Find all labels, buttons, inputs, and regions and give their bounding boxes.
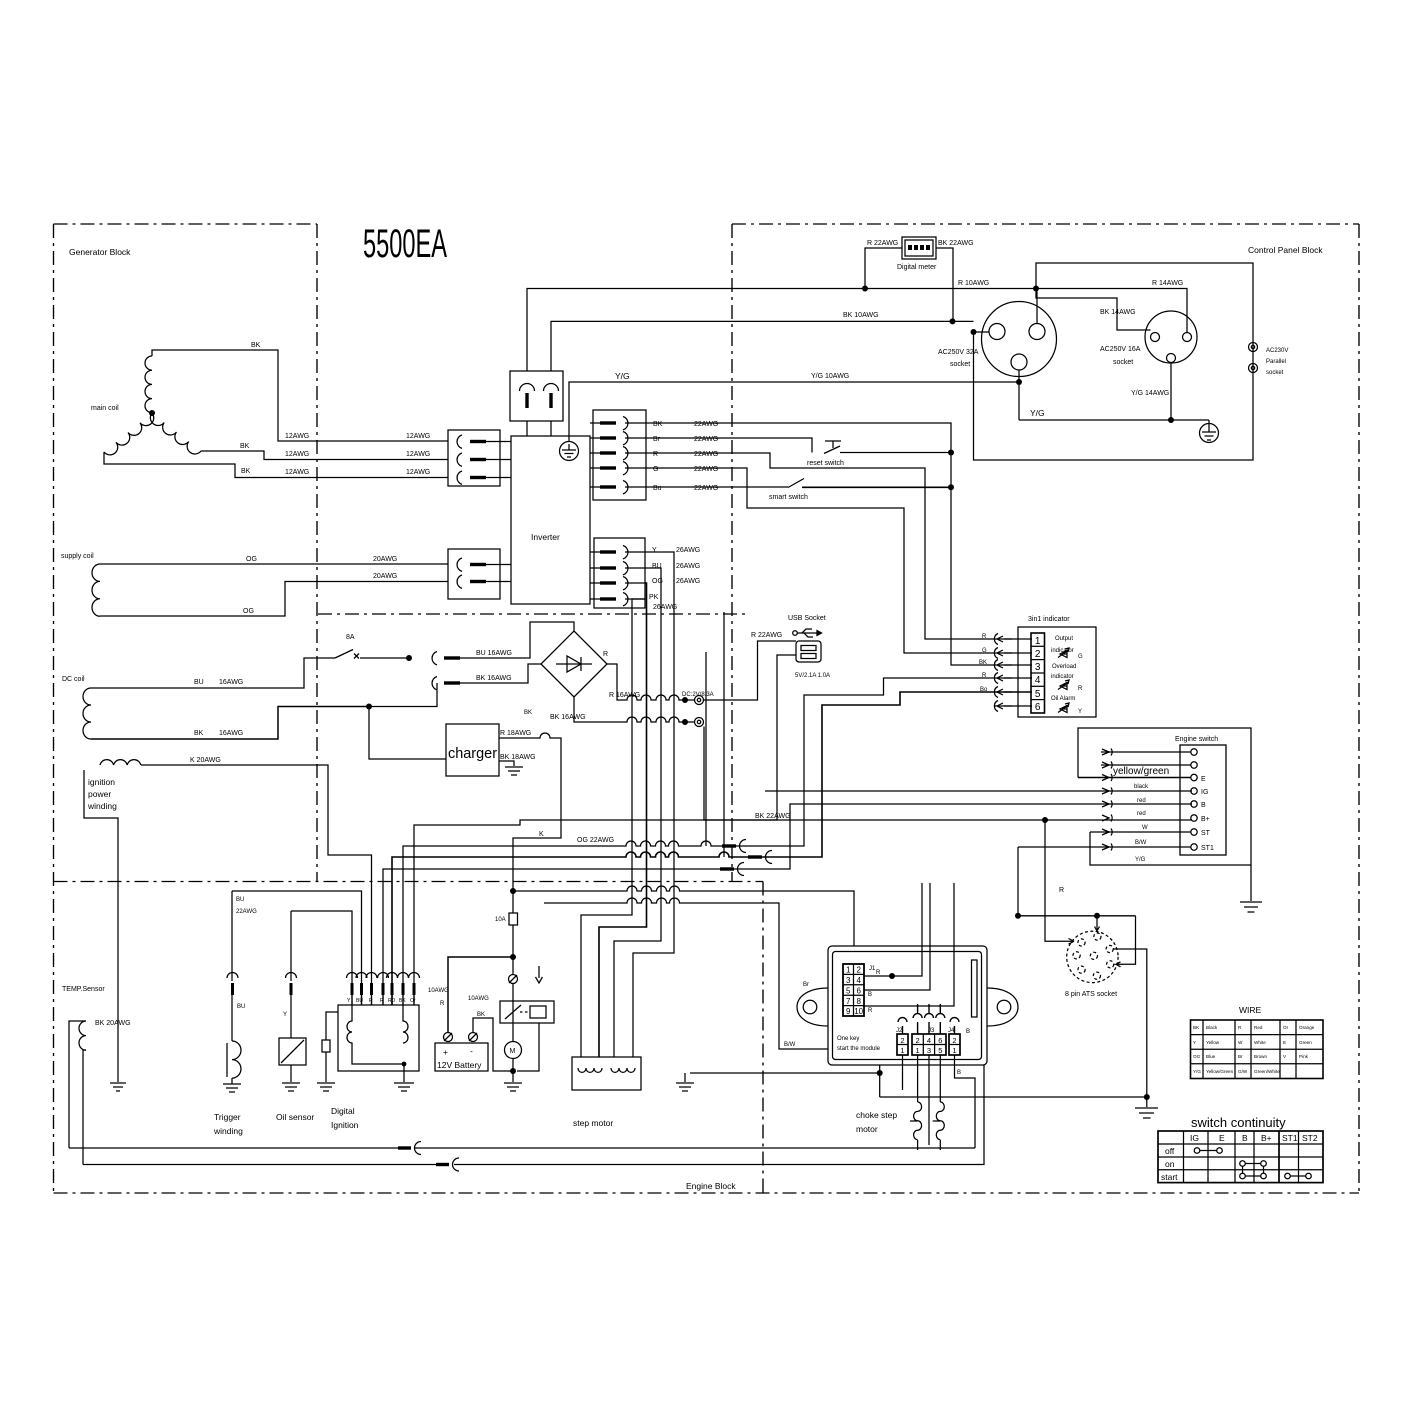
svg-text:Y: Y (283, 1012, 287, 1018)
svg-text:-: - (470, 1046, 473, 1056)
svg-text:R: R (653, 451, 658, 458)
svg-text:BK 14AWG: BK 14AWG (1100, 309, 1136, 316)
svg-text:Y: Y (1078, 709, 1082, 715)
svg-text:Bo: Bo (980, 687, 988, 693)
svg-text:start: start (1161, 1172, 1178, 1182)
svg-text:2: 2 (900, 1036, 904, 1045)
svg-text:ST1: ST1 (1282, 1133, 1298, 1143)
svg-text:Oil sensor: Oil sensor (276, 1112, 314, 1122)
svg-text:ignition: ignition (88, 777, 115, 787)
svg-text:DC:2V/8.3A: DC:2V/8.3A (682, 692, 714, 698)
svg-text:Orange: Orange (1299, 1025, 1315, 1030)
svg-text:Black: Black (1206, 1025, 1218, 1030)
svg-text:1: 1 (1035, 636, 1041, 647)
svg-text:1: 1 (916, 1046, 920, 1055)
svg-text:BU: BU (356, 998, 363, 1004)
svg-text:Pink: Pink (1299, 1054, 1309, 1059)
svg-text:winding: winding (213, 1126, 243, 1136)
svg-text:Y: Y (652, 547, 657, 554)
svg-text:K: K (539, 831, 544, 838)
svg-text:12AWG: 12AWG (406, 469, 430, 476)
svg-text:Y/G: Y/G (1030, 408, 1045, 418)
svg-text:B/W: B/W (784, 1042, 796, 1048)
svg-text:R 18AWG: R 18AWG (500, 730, 531, 737)
svg-text:2: 2 (916, 1036, 920, 1045)
svg-text:WIRE: WIRE (1239, 1005, 1262, 1015)
svg-text:7: 7 (846, 997, 851, 1006)
svg-text:Trigger: Trigger (214, 1112, 241, 1122)
svg-text:switch continuity: switch continuity (1191, 1115, 1286, 1130)
svg-text:Y/G: Y/G (615, 371, 630, 381)
svg-text:22AWG: 22AWG (694, 436, 718, 443)
svg-text:OG: OG (243, 608, 254, 615)
svg-text:ST: ST (1201, 830, 1211, 837)
svg-text:12AWG: 12AWG (406, 433, 430, 440)
svg-text:winding: winding (87, 801, 117, 811)
svg-text:B: B (957, 1070, 961, 1076)
svg-text:main coil: main coil (91, 405, 119, 412)
svg-text:Or: Or (410, 998, 416, 1004)
svg-text:B: B (1242, 1133, 1248, 1143)
svg-text:3: 3 (927, 1046, 931, 1055)
svg-text:9: 9 (846, 1007, 851, 1016)
svg-text:DC coil: DC coil (62, 676, 85, 683)
svg-text:B: B (966, 1029, 970, 1035)
svg-text:AC250V 16A: AC250V 16A (1100, 346, 1141, 353)
svg-text:power: power (88, 789, 111, 799)
svg-text:Br: Br (803, 982, 809, 988)
svg-text:IG: IG (1190, 1133, 1199, 1143)
svg-text:BK: BK (241, 468, 251, 475)
svg-text:Bu: Bu (653, 485, 662, 492)
svg-text:B/W: B/W (1135, 840, 1147, 846)
svg-text:BK 16AWG: BK 16AWG (476, 675, 512, 682)
svg-text:Oil Alarm: Oil Alarm (1051, 696, 1075, 702)
svg-text:4: 4 (1035, 675, 1041, 686)
svg-text:5: 5 (938, 1046, 942, 1055)
svg-text:OG: OG (246, 556, 257, 563)
svg-text:Red: Red (1254, 1025, 1263, 1030)
svg-text:6: 6 (856, 986, 861, 995)
svg-text:1: 1 (900, 1046, 904, 1055)
svg-text:socket: socket (1266, 370, 1284, 376)
svg-text:12AWG: 12AWG (285, 451, 309, 458)
svg-text:E: E (1219, 1133, 1225, 1143)
svg-text:red: red (1137, 798, 1146, 804)
svg-text:BK: BK (240, 443, 250, 450)
svg-text:BK: BK (653, 421, 663, 428)
svg-text:Output: Output (1055, 636, 1073, 642)
svg-text:20AWG: 20AWG (373, 573, 397, 580)
svg-text:BK 10AWG: BK 10AWG (843, 312, 879, 319)
svg-text:BK: BK (251, 342, 261, 349)
svg-text:reset switch: reset switch (807, 460, 844, 467)
svg-text:Br: Br (653, 436, 661, 443)
svg-text:White: White (1254, 1040, 1266, 1045)
svg-text:B: B (868, 992, 872, 998)
svg-text:start the module: start the module (837, 1046, 881, 1052)
svg-text:PK: PK (649, 594, 659, 601)
svg-text:8: 8 (856, 997, 861, 1006)
svg-text:R: R (440, 1001, 445, 1007)
svg-text:M: M (510, 1048, 516, 1055)
svg-text:22AWG: 22AWG (694, 451, 718, 458)
svg-text:Yellow: Yellow (1206, 1040, 1220, 1045)
svg-text:Blue: Blue (1206, 1054, 1216, 1059)
svg-text:BK: BK (524, 710, 532, 716)
svg-text:TEMP.Sensor: TEMP.Sensor (62, 986, 105, 993)
svg-text:Engine switch: Engine switch (1175, 736, 1218, 743)
svg-text:12V Battery: 12V Battery (437, 1060, 482, 1070)
svg-text:indicator: indicator (1051, 674, 1074, 680)
svg-text:8 pin ATS socket: 8 pin ATS socket (1065, 991, 1117, 998)
svg-text:BK: BK (477, 1012, 485, 1018)
svg-text:red: red (1137, 811, 1146, 817)
svg-text:Y/G 14AWG: Y/G 14AWG (1131, 390, 1169, 397)
svg-text:G: G (1078, 654, 1083, 660)
svg-text:3: 3 (1035, 662, 1041, 673)
svg-text:BK: BK (194, 730, 204, 737)
svg-text:+: + (443, 1047, 448, 1057)
svg-text:G/W: G/W (1238, 1069, 1248, 1074)
svg-text:2: 2 (856, 966, 861, 975)
svg-text:R 22AWG: R 22AWG (751, 632, 782, 639)
svg-text:B+: B+ (1201, 816, 1210, 823)
svg-text:4: 4 (856, 976, 861, 985)
svg-text:Ignition: Ignition (331, 1120, 359, 1130)
svg-text:16AWG: 16AWG (219, 730, 243, 737)
svg-text:Green/White: Green/White (1254, 1069, 1280, 1074)
svg-text:B: B (1201, 802, 1206, 809)
svg-text:5: 5 (1035, 689, 1041, 700)
svg-text:AC230V: AC230V (1266, 348, 1288, 354)
svg-text:on: on (1165, 1159, 1175, 1169)
svg-text:BK: BK (979, 660, 987, 666)
svg-text:Parallel: Parallel (1266, 359, 1286, 365)
svg-text:black: black (1134, 784, 1149, 790)
svg-text:J1: J1 (869, 966, 876, 972)
svg-text:E: E (1201, 776, 1206, 783)
svg-text:12AWG: 12AWG (285, 433, 309, 440)
svg-text:motor: motor (856, 1124, 878, 1134)
svg-text:22AWG: 22AWG (694, 421, 718, 428)
svg-text:ST1: ST1 (1201, 845, 1214, 852)
svg-text:socket: socket (1113, 359, 1133, 366)
svg-text:Control Panel Block: Control Panel Block (1248, 245, 1323, 255)
svg-text:choke step: choke step (856, 1110, 897, 1120)
svg-text:socket: socket (950, 361, 970, 368)
svg-text:22AWG: 22AWG (694, 466, 718, 473)
svg-text:G: G (653, 466, 658, 473)
svg-text:4: 4 (927, 1036, 931, 1045)
svg-text:26AWG: 26AWG (676, 578, 700, 585)
svg-text:2: 2 (1035, 649, 1041, 660)
svg-text:Green: Green (1299, 1040, 1312, 1045)
svg-text:R: R (1078, 686, 1083, 692)
svg-text:R: R (982, 673, 987, 679)
svg-text:R 10AWG: R 10AWG (958, 280, 989, 287)
svg-text:smart switch: smart switch (769, 494, 808, 501)
svg-text:Digital: Digital (331, 1106, 355, 1116)
svg-text:supply coil: supply coil (61, 553, 94, 560)
svg-text:5V/2.1A 1.0A: 5V/2.1A 1.0A (795, 673, 830, 679)
svg-text:Inverter: Inverter (531, 532, 560, 542)
svg-text:6: 6 (1035, 702, 1041, 713)
svg-text:W: W (1238, 1040, 1243, 1045)
svg-text:charger: charger (448, 745, 497, 762)
svg-text:BU: BU (652, 563, 662, 570)
svg-text:OG: OG (1193, 1054, 1201, 1059)
svg-text:10A: 10A (495, 917, 506, 923)
svg-text:26AWG: 26AWG (676, 563, 700, 570)
svg-text:R: R (1059, 887, 1064, 894)
svg-text:R: R (982, 634, 987, 640)
svg-text:yellow/green: yellow/green (1113, 766, 1169, 777)
svg-text:OG 22AWG: OG 22AWG (577, 837, 614, 844)
svg-text:16AWG: 16AWG (219, 679, 243, 686)
svg-text:IG: IG (1201, 789, 1208, 796)
svg-text:Digital meter: Digital meter (897, 264, 937, 271)
svg-text:step motor: step motor (573, 1118, 613, 1128)
svg-text:AC250V 32A: AC250V 32A (938, 349, 979, 356)
svg-text:12AWG: 12AWG (285, 469, 309, 476)
svg-text:BK 22AWG: BK 22AWG (938, 240, 974, 247)
svg-text:BU: BU (237, 1004, 245, 1010)
svg-text:BK 16AWG: BK 16AWG (550, 714, 586, 721)
svg-text:Y/G: Y/G (1135, 857, 1146, 863)
svg-text:BK: BK (1193, 1025, 1200, 1030)
svg-text:10AWG: 10AWG (428, 988, 449, 994)
svg-text:off: off (1165, 1146, 1175, 1156)
svg-text:R: R (876, 970, 881, 976)
svg-text:3: 3 (846, 976, 851, 985)
svg-text:22AWG: 22AWG (236, 909, 257, 915)
svg-text:Y: Y (1193, 1040, 1196, 1045)
svg-text:10: 10 (854, 1007, 863, 1016)
svg-text:5500EA: 5500EA (363, 222, 447, 266)
svg-text:Brown: Brown (1254, 1054, 1267, 1059)
svg-text:BU 16AWG: BU 16AWG (476, 650, 512, 657)
svg-text:8A: 8A (346, 634, 355, 641)
svg-text:12AWG: 12AWG (406, 451, 430, 458)
svg-text:BK 22AWG: BK 22AWG (755, 813, 791, 820)
svg-text:W: W (1142, 825, 1148, 831)
svg-text:Engine Block: Engine Block (686, 1181, 736, 1191)
svg-text:Generator Block: Generator Block (69, 247, 131, 257)
svg-text:R: R (868, 1008, 873, 1014)
svg-text:3in1 indicator: 3in1 indicator (1028, 616, 1070, 623)
svg-text:Br: Br (1238, 1054, 1243, 1059)
svg-text:R 22AWG: R 22AWG (867, 240, 898, 247)
svg-text:2: 2 (952, 1036, 956, 1045)
svg-text:26AWG: 26AWG (676, 547, 700, 554)
svg-text:R: R (603, 651, 608, 658)
svg-text:6: 6 (938, 1036, 942, 1045)
svg-text:ST2: ST2 (1302, 1133, 1318, 1143)
svg-text:USB Socket: USB Socket (788, 615, 826, 622)
svg-text:BK 20AWG: BK 20AWG (95, 1020, 131, 1027)
svg-text:1: 1 (846, 966, 851, 975)
svg-text:5: 5 (846, 986, 851, 995)
svg-text:R 14AWG: R 14AWG (1152, 280, 1183, 287)
svg-text:BU: BU (236, 897, 244, 903)
svg-text:20AWG: 20AWG (373, 556, 397, 563)
svg-text:BU: BU (194, 679, 204, 686)
svg-text:Yellow/Green: Yellow/Green (1206, 1069, 1234, 1074)
svg-text:BK 18AWG: BK 18AWG (500, 754, 536, 761)
svg-text:Or: Or (1283, 1025, 1289, 1030)
svg-text:Y/G 10AWG: Y/G 10AWG (811, 373, 849, 380)
svg-text:E: E (1283, 1040, 1286, 1045)
svg-text:Y/G: Y/G (1193, 1069, 1201, 1074)
svg-text:K 20AWG: K 20AWG (190, 757, 221, 764)
svg-text:One key: One key (837, 1036, 859, 1042)
svg-text:10AWG: 10AWG (468, 996, 489, 1002)
svg-text:B+: B+ (1261, 1133, 1272, 1143)
svg-text:Overload: Overload (1052, 664, 1076, 670)
svg-text:1: 1 (952, 1046, 956, 1055)
svg-text:G: G (982, 648, 987, 654)
svg-text:22AWG: 22AWG (694, 485, 718, 492)
svg-text:R 16AWG: R 16AWG (609, 692, 640, 699)
